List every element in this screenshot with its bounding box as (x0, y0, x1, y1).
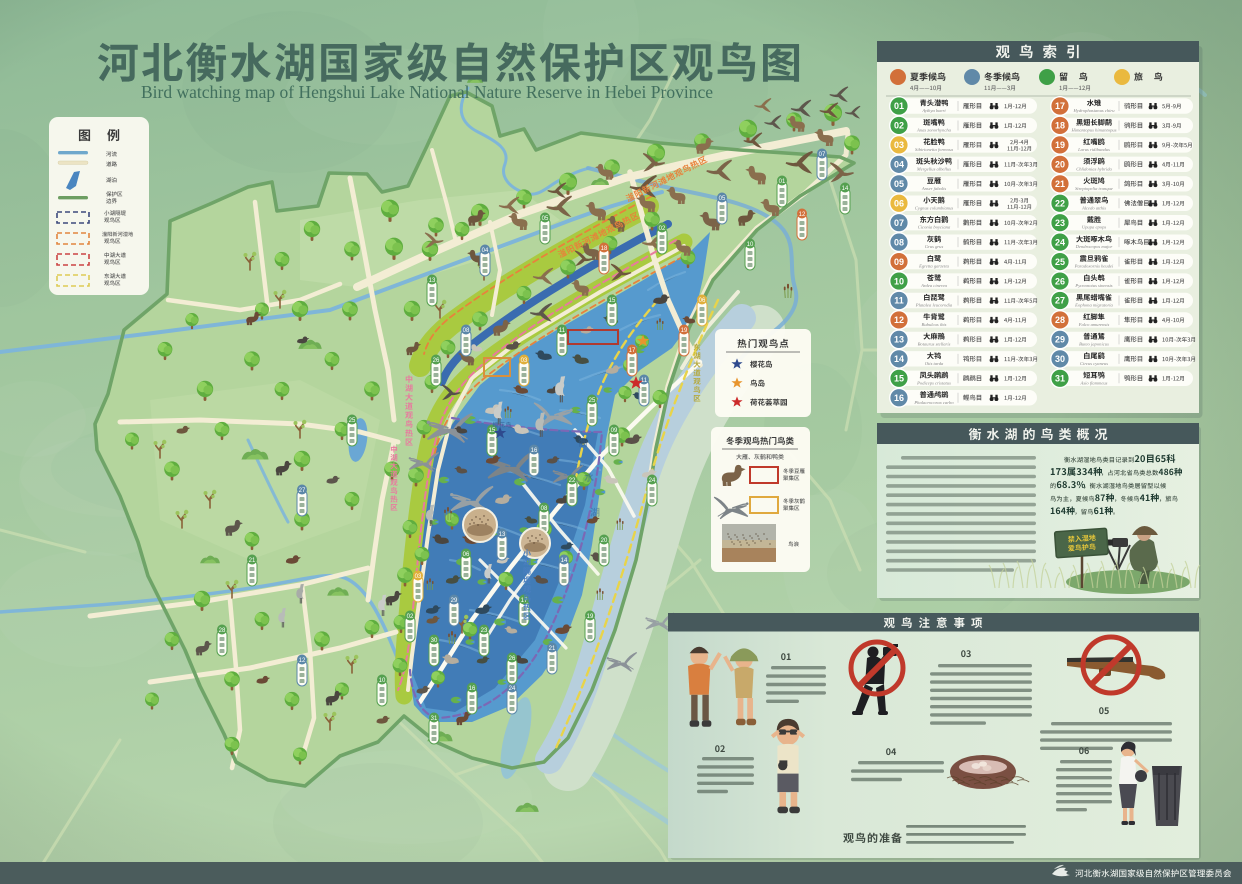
svg-text:Streptopelia tranque: Streptopelia tranque (1075, 186, 1113, 191)
svg-text:09: 09 (894, 257, 904, 267)
svg-text:25: 25 (1055, 257, 1065, 267)
svg-text:Dendrocopos major: Dendrocopos major (1075, 244, 1113, 249)
svg-text:23: 23 (481, 628, 488, 634)
svg-text:20: 20 (601, 538, 608, 544)
svg-text:Mergellus albellus: Mergellus albellus (916, 166, 951, 171)
svg-text:08: 08 (894, 237, 904, 247)
svg-text:19: 19 (587, 614, 594, 620)
svg-text:22: 22 (1055, 198, 1065, 208)
svg-text:Larus ridibundus: Larus ridibundus (1077, 147, 1110, 152)
svg-text:21: 21 (249, 558, 256, 564)
svg-text:13: 13 (894, 335, 904, 345)
svg-text:21: 21 (1055, 179, 1065, 189)
svg-text:Ciconia boyciana: Ciconia boyciana (918, 225, 951, 230)
svg-text:13: 13 (429, 278, 436, 284)
svg-text:15: 15 (894, 374, 904, 384)
svg-text:01: 01 (779, 179, 786, 185)
svg-text:12: 12 (894, 315, 904, 325)
svg-text:Aythya baeri: Aythya baeri (921, 108, 946, 113)
svg-text:Falco amurensis: Falco amurensis (1078, 322, 1110, 327)
svg-text:28: 28 (1055, 315, 1065, 325)
svg-text:05: 05 (894, 179, 904, 189)
svg-text:25: 25 (349, 418, 356, 424)
svg-text:04: 04 (894, 160, 904, 170)
svg-text:Ardea cinerea: Ardea cinerea (920, 283, 948, 288)
svg-text:24: 24 (509, 686, 516, 692)
svg-text:18: 18 (1055, 121, 1065, 131)
svg-text:31: 31 (431, 716, 438, 722)
svg-text:19: 19 (1055, 140, 1065, 150)
svg-text:11: 11 (894, 296, 904, 306)
svg-text:Alcedo atthis: Alcedo atthis (1081, 205, 1106, 210)
svg-text:07: 07 (894, 218, 904, 228)
svg-text:Chlidonias hybrida: Chlidonias hybrida (1076, 166, 1112, 171)
svg-text:14: 14 (894, 354, 904, 364)
svg-text:30: 30 (1055, 354, 1065, 364)
svg-text:10: 10 (379, 678, 386, 684)
svg-text:09: 09 (611, 428, 618, 434)
svg-text:03: 03 (894, 140, 904, 150)
svg-text:Otis tarda: Otis tarda (925, 361, 944, 366)
svg-text:24: 24 (649, 478, 656, 484)
svg-text:27: 27 (1055, 296, 1065, 306)
svg-text:Asio flammeus: Asio flammeus (1080, 380, 1108, 385)
svg-text:05: 05 (542, 216, 549, 222)
svg-text:11: 11 (641, 378, 648, 384)
svg-text:06: 06 (699, 298, 706, 304)
svg-text:05: 05 (719, 196, 726, 202)
svg-text:29: 29 (451, 598, 458, 604)
svg-text:15: 15 (609, 298, 616, 304)
svg-text:19: 19 (681, 328, 688, 334)
svg-text:08: 08 (541, 506, 548, 512)
svg-text:Sibirionetta formosa: Sibirionetta formosa (915, 147, 954, 152)
svg-text:12: 12 (299, 658, 306, 664)
svg-text:18: 18 (601, 246, 608, 252)
svg-text:Grus grus: Grus grus (925, 244, 944, 249)
svg-text:Anas zonorhyncha: Anas zonorhyncha (916, 127, 952, 132)
svg-text:11: 11 (559, 328, 566, 334)
svg-text:26: 26 (433, 358, 440, 364)
svg-text:02: 02 (894, 121, 904, 131)
svg-text:Bird watching map of Hengshui: Bird watching map of Hengshui Lake Natio… (141, 82, 713, 102)
svg-text:17: 17 (629, 348, 636, 354)
svg-text:Anser fabalis: Anser fabalis (921, 186, 947, 191)
svg-text:13: 13 (499, 532, 506, 538)
svg-text:27: 27 (299, 488, 306, 494)
svg-text:10: 10 (894, 276, 904, 286)
svg-text:Cygnus columbianus: Cygnus columbianus (915, 205, 954, 210)
svg-text:Himantopus himantopus: Himantopus himantopus (1070, 127, 1116, 132)
svg-text:10: 10 (747, 242, 754, 248)
svg-text:Hydrophasianus chiru: Hydrophasianus chiru (1072, 108, 1115, 113)
svg-text:Egretta garzetta: Egretta garzetta (918, 264, 950, 269)
svg-text:26: 26 (509, 656, 516, 662)
svg-text:Podiceps cristatus: Podiceps cristatus (916, 380, 951, 385)
svg-text:17: 17 (1055, 101, 1065, 111)
svg-text:Paradoxornis heudei: Paradoxornis heudei (1074, 264, 1114, 269)
svg-text:24: 24 (1055, 237, 1065, 247)
svg-text:Upupa epops: Upupa epops (1082, 225, 1107, 230)
svg-text:03: 03 (521, 358, 528, 364)
svg-text:06: 06 (463, 552, 470, 558)
svg-text:14: 14 (842, 186, 849, 192)
svg-text:06: 06 (894, 198, 904, 208)
svg-text:16: 16 (894, 393, 904, 403)
svg-text:23: 23 (1055, 218, 1065, 228)
svg-text:15: 15 (489, 428, 496, 434)
svg-text:Pycnonotus sinensis: Pycnonotus sinensis (1074, 283, 1112, 288)
svg-text:Bubulcus ibis: Bubulcus ibis (922, 322, 947, 327)
svg-text:26: 26 (1055, 276, 1065, 286)
svg-text:03: 03 (415, 574, 422, 580)
svg-text:21: 21 (549, 646, 556, 652)
svg-text:Phalacrocorax carbo: Phalacrocorax carbo (913, 400, 954, 405)
svg-text:Buteo japonicus: Buteo japonicus (1079, 341, 1109, 346)
svg-text:Circus cyaneus: Circus cyaneus (1080, 361, 1108, 366)
svg-text:07: 07 (819, 152, 826, 158)
svg-text:25: 25 (589, 398, 596, 404)
svg-text:08: 08 (463, 328, 470, 334)
svg-text:Botaurus stellaris: Botaurus stellaris (918, 341, 951, 346)
svg-text:22: 22 (569, 478, 576, 484)
svg-text:Platalea leucorodia: Platalea leucorodia (915, 303, 953, 308)
svg-text:29: 29 (1055, 335, 1065, 345)
svg-text:12: 12 (799, 212, 806, 218)
svg-text:20: 20 (1055, 160, 1065, 170)
svg-text:31: 31 (1055, 374, 1065, 384)
svg-text:01: 01 (894, 101, 904, 111)
svg-text:04: 04 (482, 248, 489, 254)
svg-text:16: 16 (469, 686, 476, 692)
svg-text:02: 02 (407, 614, 414, 620)
svg-text:16: 16 (531, 448, 538, 454)
svg-text:30: 30 (431, 638, 438, 644)
svg-text:Eophona migratoria: Eophona migratoria (1074, 303, 1113, 308)
svg-text:28: 28 (219, 628, 226, 634)
svg-text:02: 02 (659, 226, 666, 232)
svg-text:14: 14 (561, 558, 568, 564)
